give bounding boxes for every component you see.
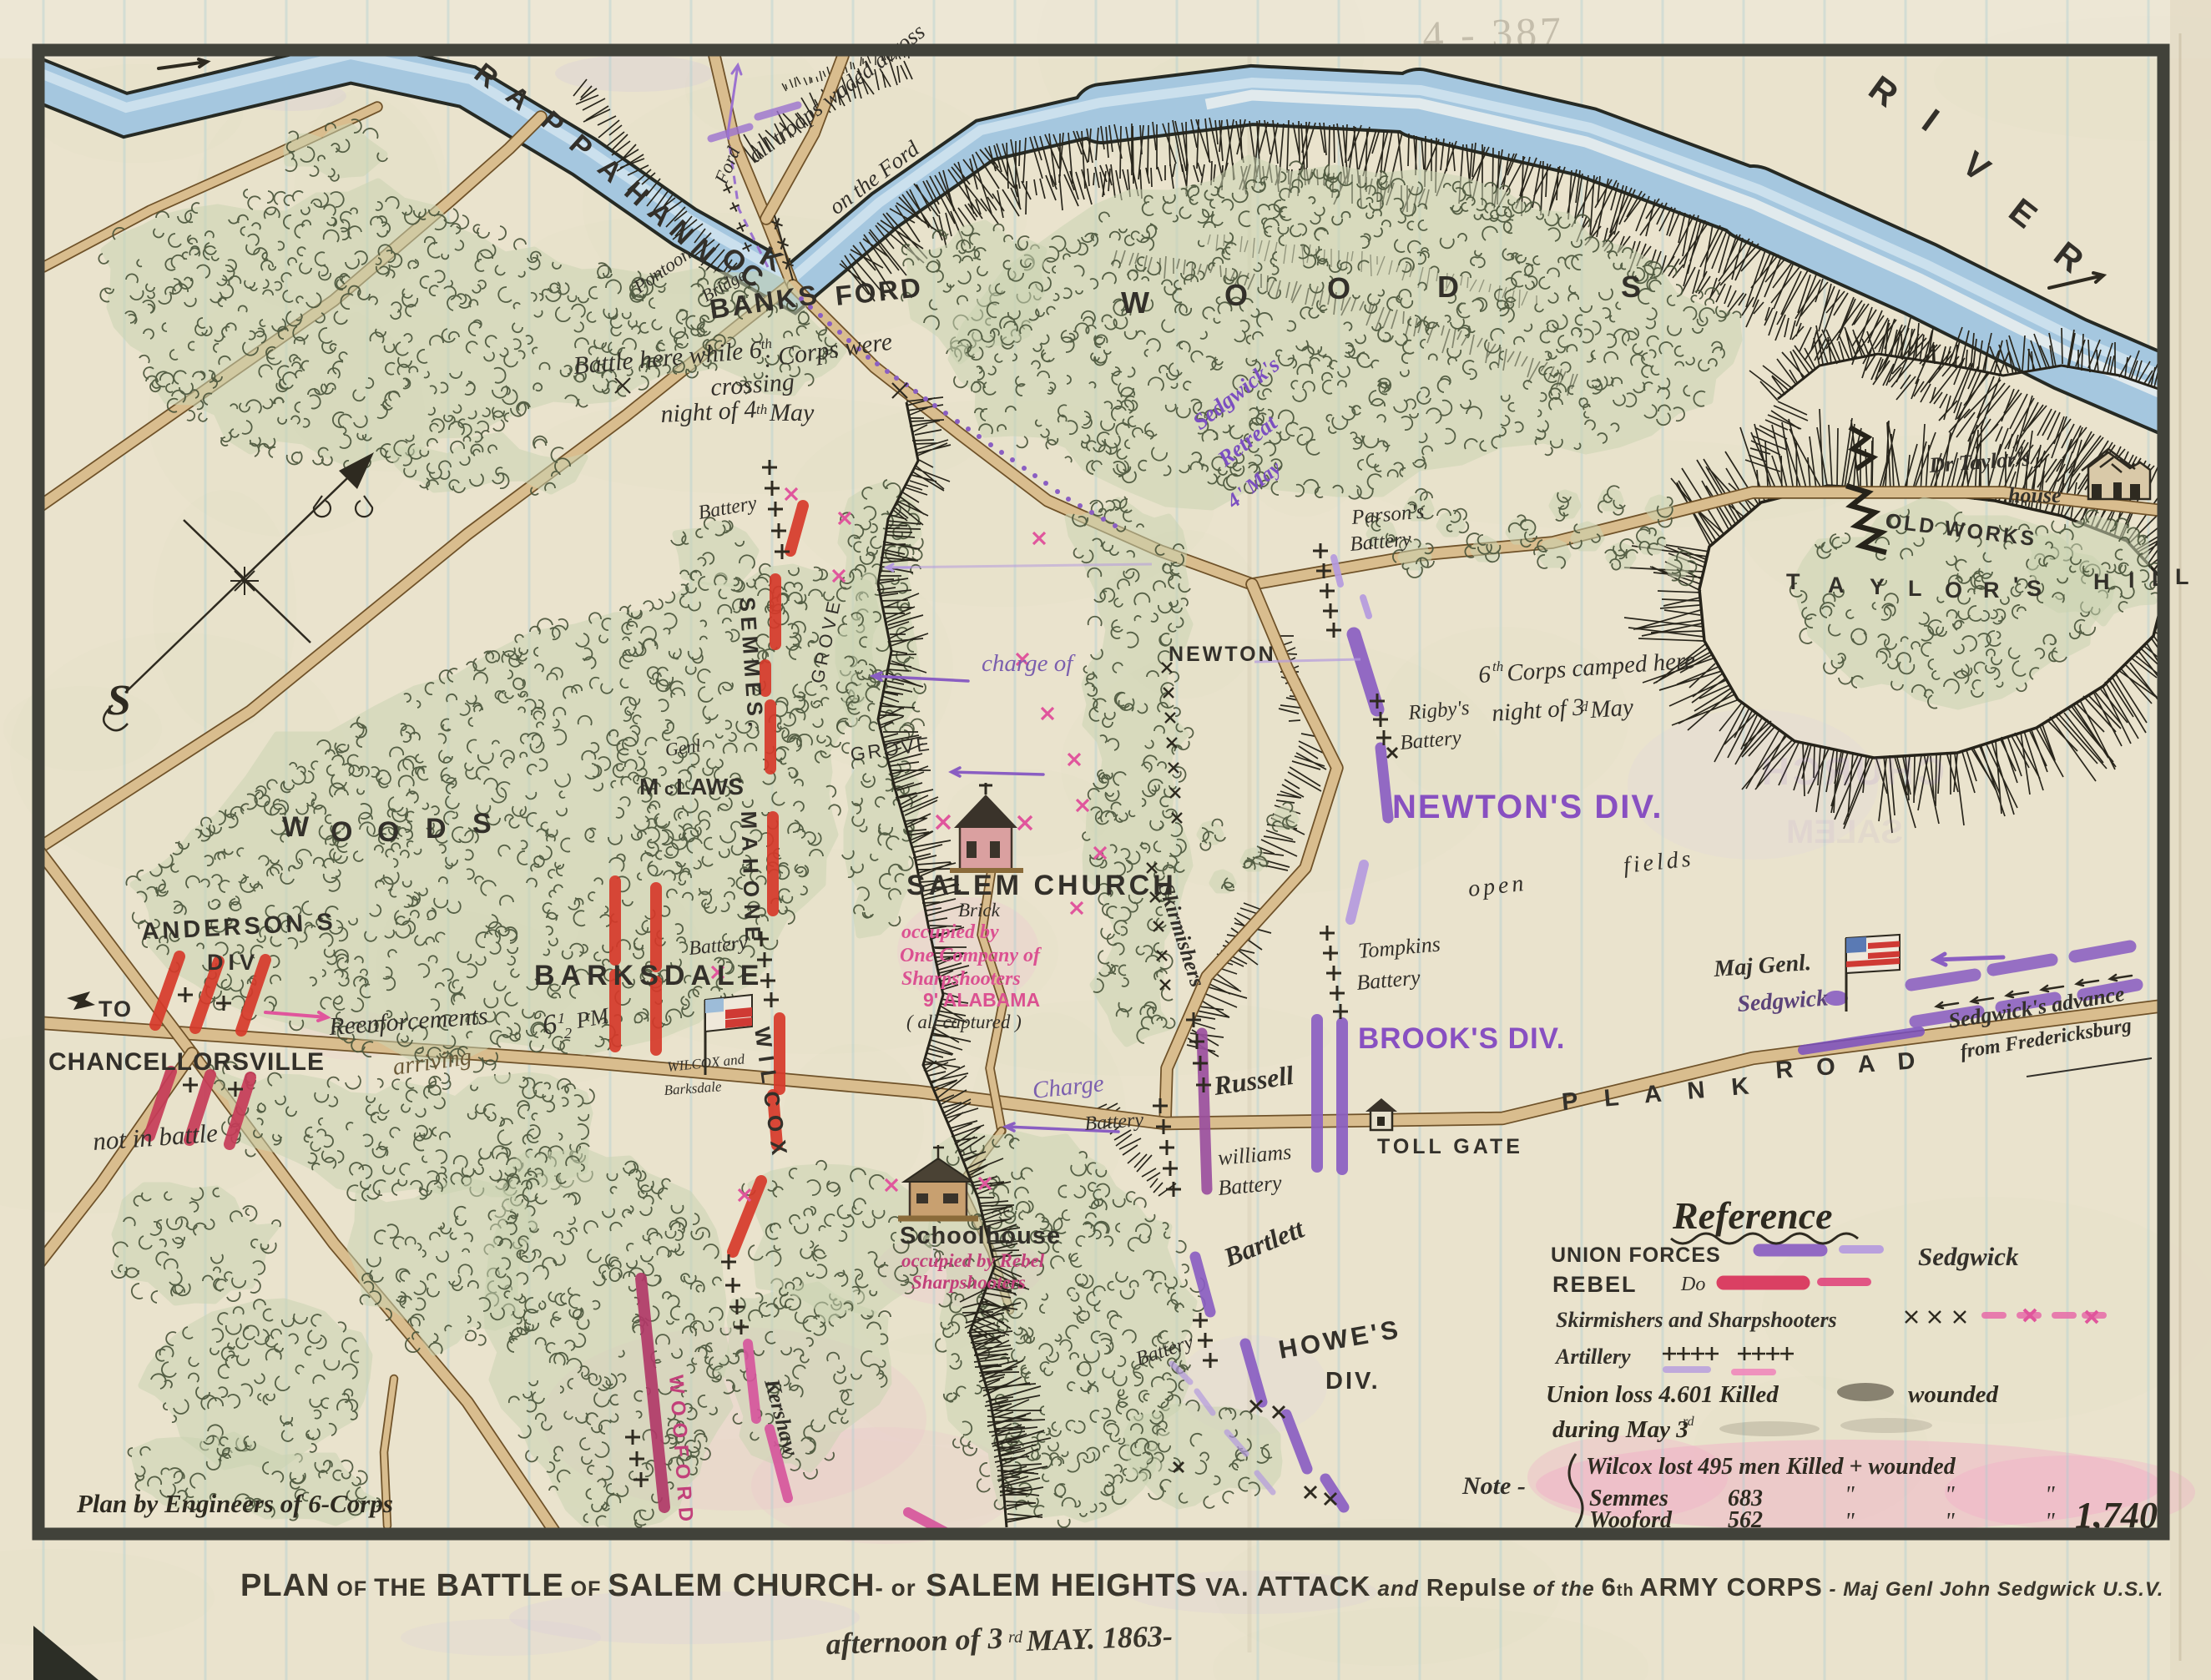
svg-text:May: May bbox=[1588, 694, 1634, 724]
svg-text:I: I bbox=[2128, 568, 2135, 593]
svg-text:afternoon of 3: afternoon of 3 bbox=[825, 1622, 1003, 1661]
svg-text:Plan by Engineers of 6-Corps: Plan by Engineers of 6-Corps bbox=[76, 1489, 393, 1518]
svg-text:A: A bbox=[1828, 573, 1845, 598]
svg-text:Wilcox lost 495 men Killed + w: Wilcox lost 495 men Killed + wounded bbox=[1586, 1454, 1956, 1480]
svg-text:R: R bbox=[1983, 578, 2000, 603]
svg-text:BROOK'S DIV.: BROOK'S DIV. bbox=[1358, 1022, 1566, 1055]
svg-text:M: M bbox=[639, 774, 659, 800]
svg-text:CHURCH: CHURCH bbox=[1759, 749, 1945, 793]
svg-text:Do: Do bbox=[1680, 1274, 1705, 1295]
svg-text:O: O bbox=[377, 816, 399, 848]
svg-text:Artillery: Artillery bbox=[1554, 1345, 1631, 1369]
svg-text:( all captured ): ( all captured ) bbox=[906, 1012, 1022, 1032]
svg-text:during May 3: during May 3 bbox=[1552, 1416, 1689, 1443]
svg-text:W: W bbox=[282, 811, 310, 843]
svg-text:6: 6 bbox=[1477, 661, 1492, 689]
svg-text:NEWTON'S DIV.: NEWTON'S DIV. bbox=[1392, 789, 1663, 825]
svg-text:S: S bbox=[107, 677, 131, 724]
svg-text:REBEL: REBEL bbox=[1552, 1272, 1638, 1297]
svg-text:th: th bbox=[1492, 658, 1503, 674]
svg-text:O: O bbox=[331, 816, 352, 848]
svg-text:DIV.: DIV. bbox=[1325, 1368, 1381, 1395]
svg-text:th: th bbox=[756, 401, 767, 417]
svg-text:house: house bbox=[2008, 483, 2062, 507]
svg-text:c: c bbox=[664, 780, 674, 799]
svg-text:DIV: DIV bbox=[207, 950, 260, 975]
svg-text:SALEM CHURCH: SALEM CHURCH bbox=[906, 870, 1177, 901]
svg-text:UNION FORCES: UNION FORCES bbox=[1551, 1244, 1721, 1267]
svg-text:': ' bbox=[2013, 573, 2018, 598]
svg-text:D: D bbox=[426, 813, 447, 845]
svg-text:H: H bbox=[2093, 569, 2110, 594]
svg-text:NEWTON: NEWTON bbox=[1169, 643, 1276, 666]
svg-text:Union loss 4.601 Killed: Union loss 4.601 Killed bbox=[1546, 1381, 1779, 1408]
svg-text:": " bbox=[2045, 1482, 2055, 1508]
svg-text:occupied by Rebel: occupied by Rebel bbox=[901, 1250, 1045, 1271]
svg-text:wounded: wounded bbox=[1908, 1381, 1998, 1408]
svg-text:O: O bbox=[1945, 578, 1962, 603]
svg-text:One Company of: One Company of bbox=[900, 945, 1042, 966]
svg-text:": " bbox=[1845, 1482, 1855, 1508]
svg-text:2: 2 bbox=[564, 1025, 572, 1042]
svg-text:TOLL GATE: TOLL GATE bbox=[1377, 1135, 1523, 1158]
svg-text:L: L bbox=[1908, 576, 1922, 601]
svg-text:LAWS: LAWS bbox=[676, 774, 744, 800]
svg-text:Sharpshooters: Sharpshooters bbox=[911, 1272, 1026, 1293]
svg-text:1: 1 bbox=[558, 1010, 565, 1027]
svg-text:": " bbox=[1945, 1482, 1955, 1508]
svg-text:T: T bbox=[1786, 569, 1800, 594]
svg-text:TO: TO bbox=[98, 996, 133, 1022]
svg-text:S: S bbox=[2027, 576, 2042, 601]
svg-text:CHANCELLORSVILLE: CHANCELLORSVILLE bbox=[48, 1048, 325, 1076]
svg-text:Note -: Note - bbox=[1461, 1472, 1526, 1500]
svg-text:Sedgwick: Sedgwick bbox=[1918, 1242, 2019, 1271]
svg-text:occupied by: occupied by bbox=[901, 921, 999, 943]
svg-text:MAY. 1863-: MAY. 1863- bbox=[1025, 1619, 1174, 1657]
svg-text:Sharpshooters: Sharpshooters bbox=[901, 968, 1021, 990]
svg-text:d: d bbox=[1581, 699, 1588, 714]
svg-text:W: W bbox=[1121, 285, 1149, 320]
svg-text:Schoolhouse: Schoolhouse bbox=[900, 1223, 1061, 1249]
svg-text:BARKSDALE: BARKSDALE bbox=[534, 960, 765, 991]
svg-text:May: May bbox=[769, 399, 815, 426]
svg-text:Brick: Brick bbox=[958, 900, 1001, 921]
svg-text:SALEM: SALEM bbox=[1786, 814, 1903, 850]
svg-text:Skirmishers and Sharpshooters: Skirmishers and Sharpshooters bbox=[1556, 1308, 1837, 1332]
svg-text:D: D bbox=[1437, 270, 1459, 304]
svg-text:S: S bbox=[472, 808, 492, 840]
svg-text:charge of: charge of bbox=[982, 650, 1076, 677]
svg-text:O: O bbox=[1327, 271, 1350, 305]
svg-text:Battery: Battery bbox=[1084, 1109, 1145, 1135]
svg-text:night of 4: night of 4 bbox=[660, 396, 758, 428]
svg-text:L: L bbox=[2175, 564, 2189, 589]
svg-text:MAHONE: MAHONE bbox=[736, 810, 766, 948]
svg-text:rd: rd bbox=[1683, 1415, 1695, 1429]
svg-text:9' ALABAMA: 9' ALABAMA bbox=[923, 989, 1040, 1011]
svg-text:Reference: Reference bbox=[1672, 1194, 1833, 1237]
svg-text:rd: rd bbox=[1008, 1628, 1023, 1647]
svg-text:S: S bbox=[1621, 270, 1641, 304]
svg-text:Y: Y bbox=[1870, 574, 1885, 599]
svg-text:O: O bbox=[1224, 278, 1248, 312]
